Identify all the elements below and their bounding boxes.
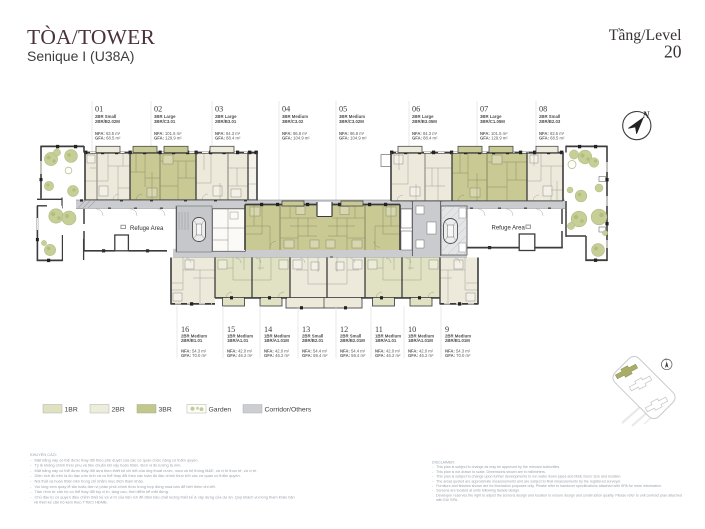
svg-text:2BR/B2.03: 2BR/B2.03 — [539, 119, 561, 124]
svg-text:2BR/B2.01M: 2BR/B2.01M — [340, 338, 365, 343]
svg-text:- The areas quoted are appro: - The areas quoted are approximate measu… — [432, 479, 621, 483]
svg-text:1BR: 1BR — [65, 407, 78, 414]
svg-text:GFA: 88.4 m²: GFA: 88.4 m² — [412, 136, 438, 141]
svg-text:GFA: 88.4 m²: GFA: 88.4 m² — [215, 136, 241, 141]
svg-text:TÒA/TOWER: TÒA/TOWER — [27, 25, 155, 49]
svg-text:- Mặt bằng này có thể được t: - Mặt bằng này có thể được thay đổi dựa … — [30, 468, 257, 473]
svg-text:GFA: 68.5 m²: GFA: 68.5 m² — [95, 136, 121, 141]
svg-text:1BR/A1.01: 1BR/A1.01 — [227, 338, 249, 343]
svg-text:3BR/C3.02M: 3BR/C3.02M — [339, 119, 364, 124]
svg-text:GFA: 46.2 m²: GFA: 46.2 m² — [264, 353, 290, 358]
svg-text:3BR: 3BR — [159, 407, 172, 414]
svg-text:07: 07 — [480, 105, 488, 114]
svg-text:KHUYẾN CÁO:: KHUYẾN CÁO: — [30, 452, 57, 457]
svg-text:- Nội thất và hoàn thiện bên: - Nội thất và hoàn thiện bên trong chỉ n… — [30, 479, 144, 484]
svg-text:GFA: 129.9 m²: GFA: 129.9 m² — [480, 136, 508, 141]
svg-text:2BR/B2.01: 2BR/B2.01 — [302, 338, 324, 343]
svg-text:20: 20 — [664, 41, 682, 61]
svg-text:03: 03 — [215, 105, 223, 114]
svg-text:GFA: 104.9 m²: GFA: 104.9 m² — [339, 136, 367, 141]
svg-text:1BR/A1.01M: 1BR/A1.01M — [264, 338, 289, 343]
svg-text:- Screens are located at uni: - Screens are located at units following… — [432, 489, 520, 493]
svg-text:- This plan is not drawn to: - This plan is not drawn to scale. Dimen… — [432, 470, 546, 474]
svg-text:Refuge Area: Refuge Area — [130, 226, 164, 232]
svg-text:GFA: 70.0 m²: GFA: 70.0 m² — [181, 353, 207, 358]
svg-text:GFA: 59.4 m²: GFA: 59.4 m² — [302, 353, 328, 358]
svg-text:GFA: 59.4 m²: GFA: 59.4 m² — [340, 353, 366, 358]
svg-text:GFA: 104.9 m²: GFA: 104.9 m² — [282, 136, 310, 141]
svg-text:2BR/B1.01M: 2BR/B1.01M — [445, 338, 470, 343]
svg-text:Refuge Area: Refuge Area — [492, 226, 526, 232]
svg-text:Garden: Garden — [209, 407, 232, 414]
svg-text:GFA: 70.0 m²: GFA: 70.0 m² — [445, 353, 471, 358]
svg-text:2BR/B2.02M: 2BR/B2.02M — [95, 119, 120, 124]
svg-text:2BR: 2BR — [112, 407, 125, 414]
svg-text:- Mặt bằng này có thể được t: - Mặt bằng này có thể được thay đổi theo… — [30, 457, 199, 462]
svg-text:GFA: 68.5 m²: GFA: 68.5 m² — [539, 136, 565, 141]
svg-text:GFA: 46.2 m²: GFA: 46.2 m² — [375, 353, 401, 358]
svg-text:08: 08 — [539, 105, 547, 114]
svg-text:3BR/C3.02: 3BR/C3.02 — [282, 119, 304, 124]
svg-text:- Tỷ lệ không chính thức phụ: - Tỷ lệ không chính thức phụ và tiêu chu… — [30, 463, 181, 468]
svg-text:- Furniture and finishes sho: - Furniture and finishes shown are for i… — [432, 484, 662, 488]
svg-text:1BR/A1.01: 1BR/A1.01 — [375, 338, 397, 343]
svg-text:- Tầm nhìn từ căn hộ có thể: - Tầm nhìn từ căn hộ có thể thay đổi tùy… — [30, 489, 169, 494]
svg-text:with EA/ SPA.: with EA/ SPA. — [436, 498, 458, 502]
svg-text:06: 06 — [412, 105, 420, 114]
svg-text:3BR/C1.05M: 3BR/C1.05M — [480, 119, 505, 124]
svg-text:3BR/C3.01: 3BR/C3.01 — [154, 119, 176, 124]
svg-text:GFA: 46.2 m²: GFA: 46.2 m² — [227, 353, 253, 358]
svg-text:2BR/B1.01: 2BR/B1.01 — [181, 338, 203, 343]
svg-text:2BR/B3.05M: 2BR/B3.05M — [412, 119, 437, 124]
svg-text:1BR/A1.01M: 1BR/A1.01M — [408, 338, 433, 343]
svg-text:- This plan is subject to ch: - This plan is subject to change upon fu… — [432, 475, 621, 479]
svg-text:GFA: 46.2 m²: GFA: 46.2 m² — [408, 353, 434, 358]
svg-text:- Chủ đầu tư có quyền điều c: - Chủ đầu tư có quyền điều chỉnh thiết k… — [30, 494, 295, 499]
svg-text:04: 04 — [282, 105, 290, 114]
svg-text:2BR/B3.01: 2BR/B3.01 — [215, 119, 237, 124]
svg-text:- This plan is subject to ch: - This plan is subject to change as may … — [432, 465, 560, 469]
svg-text:05: 05 — [339, 105, 347, 114]
svg-text:- Vui lòng xem quầy lễ tân h: - Vui lòng xem quầy lễ tân hoặc đơn vị p… — [30, 484, 216, 489]
svg-text:Corridor/Others: Corridor/Others — [265, 407, 312, 414]
svg-text:- Diện tích đo trên là đo đạ: - Diện tích đo trên là đo đạc ước tính v… — [30, 473, 241, 478]
svg-text:vẽ thiết kế căn hộ kèm theo TT: vẽ thiết kế căn hộ kèm theo TTĐC/ HĐMB. — [34, 500, 108, 505]
svg-text:02: 02 — [154, 105, 162, 114]
svg-text:Senique I (U38A): Senique I (U38A) — [27, 48, 134, 64]
svg-text:GFA: 129.9 m²: GFA: 129.9 m² — [154, 136, 182, 141]
svg-text:DISCLAIMER:: DISCLAIMER: — [432, 461, 455, 465]
svg-text:Developer reserves the right t: Developer reserves the right to adjust t… — [436, 493, 682, 497]
svg-text:01: 01 — [95, 105, 103, 114]
svg-text:N: N — [642, 111, 651, 121]
